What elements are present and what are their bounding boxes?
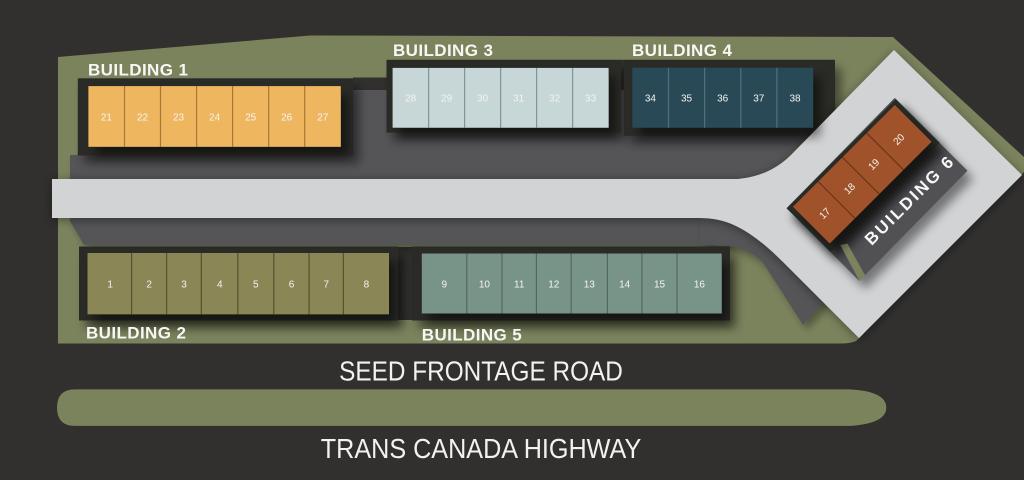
- svg-text:12: 12: [548, 280, 560, 291]
- svg-text:21: 21: [101, 113, 113, 124]
- svg-text:27: 27: [317, 113, 329, 124]
- svg-text:28: 28: [405, 94, 417, 105]
- svg-text:3: 3: [181, 280, 187, 291]
- svg-text:8: 8: [364, 280, 370, 291]
- svg-text:31: 31: [513, 94, 525, 105]
- svg-text:37: 37: [753, 94, 765, 105]
- svg-text:36: 36: [717, 94, 729, 105]
- svg-text:1: 1: [107, 280, 113, 291]
- svg-text:5: 5: [253, 280, 259, 291]
- svg-text:BUILDING 3: BUILDING 3: [393, 41, 493, 60]
- svg-text:29: 29: [441, 94, 453, 105]
- svg-text:BUILDING 1: BUILDING 1: [88, 60, 188, 79]
- svg-text:22: 22: [137, 113, 149, 124]
- svg-text:14: 14: [619, 280, 631, 291]
- svg-text:TRANS CANADA HIGHWAY: TRANS CANADA HIGHWAY: [321, 433, 642, 465]
- svg-text:4: 4: [217, 280, 223, 291]
- svg-text:30: 30: [477, 94, 489, 105]
- svg-text:BUILDING 5: BUILDING 5: [422, 326, 522, 345]
- svg-text:38: 38: [789, 94, 801, 105]
- svg-text:15: 15: [654, 280, 666, 291]
- svg-text:32: 32: [549, 94, 561, 105]
- svg-text:2: 2: [146, 280, 152, 291]
- svg-text:11: 11: [514, 280, 525, 291]
- svg-text:23: 23: [173, 113, 185, 124]
- svg-text:9: 9: [442, 280, 448, 291]
- svg-text:25: 25: [245, 113, 257, 124]
- svg-text:7: 7: [324, 280, 330, 291]
- svg-text:BUILDING 4: BUILDING 4: [632, 41, 732, 60]
- svg-text:SEED FRONTAGE ROAD: SEED FRONTAGE ROAD: [339, 355, 623, 387]
- svg-text:6: 6: [289, 280, 295, 291]
- svg-text:13: 13: [584, 280, 596, 291]
- svg-text:34: 34: [645, 94, 657, 105]
- svg-text:10: 10: [479, 280, 491, 291]
- svg-text:BUILDING 2: BUILDING 2: [86, 324, 186, 343]
- svg-text:24: 24: [209, 113, 221, 124]
- svg-text:26: 26: [281, 113, 293, 124]
- svg-text:16: 16: [694, 280, 706, 291]
- svg-text:35: 35: [681, 94, 693, 105]
- svg-text:33: 33: [585, 94, 597, 105]
